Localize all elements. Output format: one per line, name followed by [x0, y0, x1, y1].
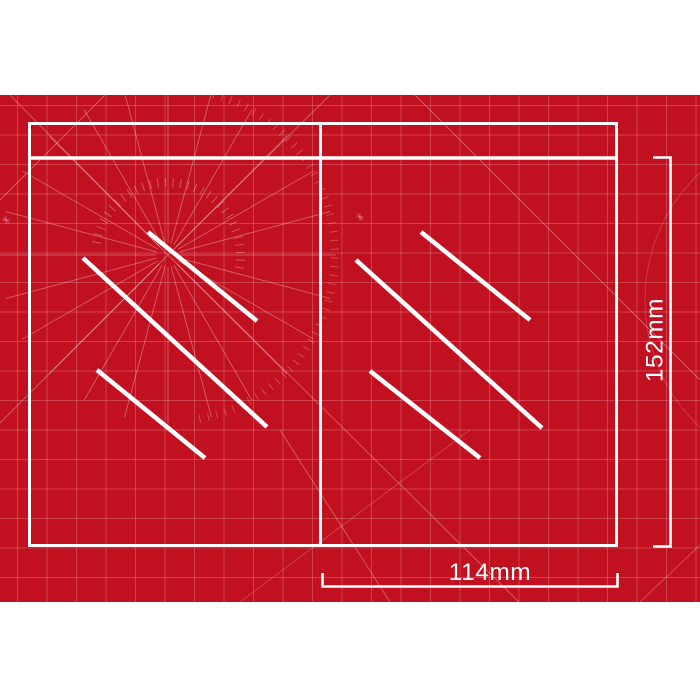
- photo-overlay: 152mm 114mm: [0, 0, 700, 700]
- product-photo: 152mm 114mm: [0, 0, 700, 700]
- bag-outline: [30, 124, 617, 546]
- gloss-reflection-line: [370, 371, 480, 458]
- gloss-reflection-line: [83, 258, 267, 427]
- gloss-reflection-line: [97, 370, 205, 458]
- gloss-reflection-line: [421, 232, 530, 320]
- mat-protractor-markings: [0, 87, 700, 602]
- width-dimension-label: 114mm: [449, 559, 531, 586]
- gloss-reflection-line: [356, 260, 542, 428]
- plastic-bags: [30, 123, 618, 546]
- height-dimension-label: 152mm: [642, 298, 669, 382]
